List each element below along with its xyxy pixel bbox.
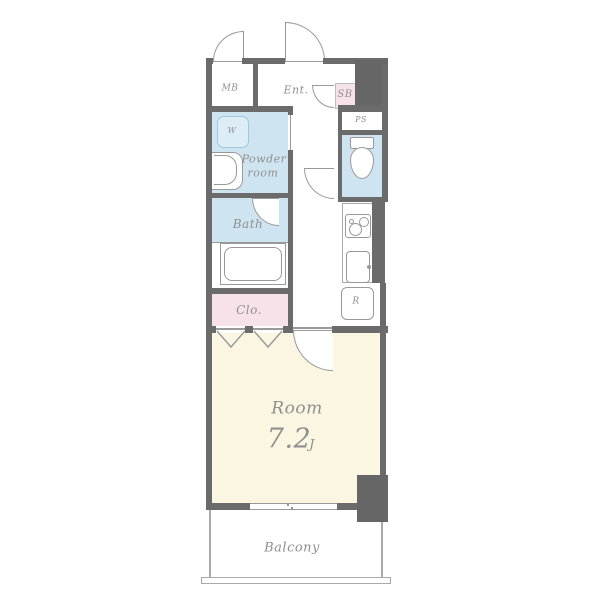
label-powder-room-line2: room <box>248 168 279 179</box>
label-closet: Clo. <box>236 304 262 316</box>
label-refrigerator: R <box>352 298 359 307</box>
wall-closet-center-nub <box>245 326 253 333</box>
wall-room-bottom-left <box>206 503 250 510</box>
label-room-size-unit: J <box>309 439 315 452</box>
wall-ent-bottom <box>206 106 293 112</box>
balcony-window <box>250 503 337 510</box>
wall-right-upper <box>382 64 388 202</box>
wall-room-top-right <box>332 326 388 333</box>
wall-ps-top <box>338 105 388 112</box>
wall-powder-right-bottom <box>288 150 293 193</box>
wall-toilet-left <box>338 135 342 202</box>
pillar-bottom-right <box>357 475 388 522</box>
wall-bath-closet-divider <box>206 288 293 294</box>
wall-top-middle <box>242 58 285 64</box>
wall-room-right <box>380 333 386 475</box>
label-bath: Bath <box>233 218 264 230</box>
powder-sliding-door <box>288 115 293 150</box>
wall-kitchen-band <box>372 202 385 283</box>
wall-bath-closet-right <box>288 198 293 326</box>
wall-ps-bottom <box>338 130 388 135</box>
balcony-left-edge <box>209 510 211 577</box>
label-room: Room <box>271 401 322 418</box>
label-meter-box: MB <box>222 85 239 94</box>
label-room-size: 7.2 <box>267 426 311 453</box>
floorplan-canvas: MB Ent. SB PS W Powder room Bath Clo. R … <box>0 0 600 600</box>
wall-left-exterior <box>206 58 212 510</box>
wall-right-mid <box>380 283 386 326</box>
label-powder-room-line1: Powder <box>242 154 287 165</box>
wall-room-top-left-nub <box>206 326 216 333</box>
label-pipe-space: PS <box>355 116 367 124</box>
wall-room-bottom-right <box>337 503 357 510</box>
wall-powder-bath-divider <box>206 193 293 198</box>
wall-mb-ent-divider <box>253 64 258 112</box>
window-center-tick-bottom <box>291 507 293 509</box>
window-center-tick-top <box>287 504 289 506</box>
powder-sliding-door-line <box>290 115 291 150</box>
label-shoe-box: SB <box>337 90 352 100</box>
label-balcony: Balcony <box>264 542 320 555</box>
balcony-rail <box>201 577 391 584</box>
wall-room-top-mid-nub <box>283 326 293 333</box>
label-washer: W <box>228 127 237 135</box>
label-entrance: Ent. <box>283 85 308 96</box>
balcony-right-edge <box>381 522 383 577</box>
